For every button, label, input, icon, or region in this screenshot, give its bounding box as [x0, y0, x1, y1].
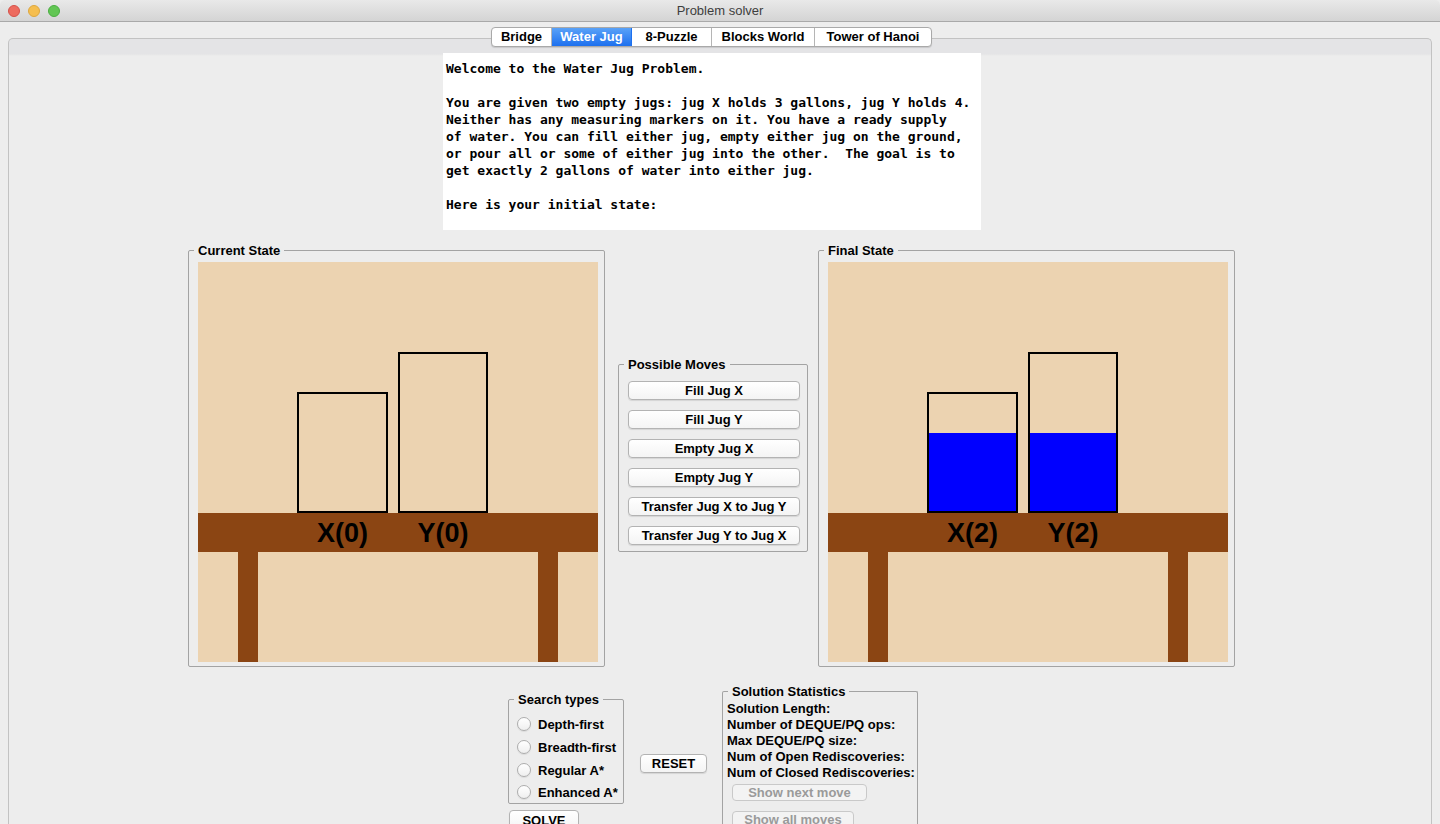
radio-breadth-first[interactable]: Breadth-first — [517, 739, 616, 755]
solution-statistics-lines: Solution Length: Number of DEQUE/PQ ops:… — [727, 701, 915, 781]
jug-y: Y(0) — [398, 352, 488, 513]
fill-jug-y-button[interactable]: Fill Jug Y — [628, 410, 800, 429]
current-state-scene: X(0) Y(0) — [198, 262, 598, 662]
transfer-jug-x-to-jug-y-button[interactable]: Transfer Jug X to Jug Y — [628, 497, 800, 516]
tab-tower-of-hanoi[interactable]: Tower of Hanoi — [815, 28, 931, 46]
table-leg-left — [238, 552, 258, 662]
transfer-jug-y-to-jug-x-button[interactable]: Transfer Jug Y to Jug X — [628, 526, 800, 545]
window-title: Problem solver — [0, 0, 1440, 22]
jug-x: X(2) — [927, 392, 1018, 513]
stat-max-deque-pq-size: Max DEQUE/PQ size: — [727, 733, 915, 749]
search-types-panel: Search types Depth-first Breadth-first R… — [508, 699, 624, 804]
tab-8-puzzle[interactable]: 8-Puzzle — [632, 28, 712, 46]
empty-jug-x-button[interactable]: Empty Jug X — [628, 439, 800, 458]
radio-button-icon[interactable] — [517, 785, 531, 799]
possible-moves-panel: Possible Moves Fill Jug X Fill Jug Y Emp… — [618, 364, 808, 552]
final-state-title: Final State — [824, 243, 898, 258]
stat-closed-rediscoveries: Num of Closed Rediscoveries: — [727, 765, 915, 781]
empty-jug-y-button[interactable]: Empty Jug Y — [628, 468, 800, 487]
radio-button-icon[interactable] — [517, 763, 531, 777]
search-types-title: Search types — [514, 692, 603, 707]
jug-x-label: X(2) — [947, 518, 998, 549]
problem-tab-bar: Bridge Water Jug 8-Puzzle Blocks World T… — [491, 27, 932, 47]
show-next-move-button[interactable]: Show next move — [732, 784, 867, 801]
radio-depth-first-label: Depth-first — [538, 717, 604, 732]
table-leg-right — [1168, 552, 1188, 662]
radio-enhanced-a-star[interactable]: Enhanced A* — [517, 784, 618, 800]
window-titlebar: Problem solver — [0, 0, 1440, 22]
show-all-moves-button[interactable]: Show all moves — [732, 811, 854, 824]
fill-jug-x-button[interactable]: Fill Jug X — [628, 381, 800, 400]
solution-statistics-title: Solution Statistics — [728, 684, 849, 699]
welcome-textbox: Welcome to the Water Jug Problem. You ar… — [443, 53, 981, 230]
stat-open-rediscoveries: Num of Open Rediscoveries: — [727, 749, 915, 765]
table-top — [828, 513, 1228, 552]
table-top — [198, 513, 598, 552]
welcome-text: Welcome to the Water Jug Problem. You ar… — [443, 53, 981, 213]
radio-regular-a-star[interactable]: Regular A* — [517, 762, 604, 778]
reset-button[interactable]: RESET — [640, 754, 707, 773]
jug-x: X(0) — [297, 392, 388, 513]
table-leg-left — [868, 552, 888, 662]
water-fill — [1030, 433, 1116, 512]
radio-depth-first[interactable]: Depth-first — [517, 716, 604, 732]
water-fill — [929, 433, 1016, 511]
current-state-title: Current State — [194, 243, 284, 258]
jug-y-label: Y(0) — [417, 518, 468, 549]
solve-button[interactable]: SOLVE — [509, 810, 579, 824]
radio-breadth-first-label: Breadth-first — [538, 740, 616, 755]
radio-button-icon[interactable] — [517, 717, 531, 731]
table-leg-right — [538, 552, 558, 662]
jug-y-label: Y(2) — [1047, 518, 1098, 549]
current-state-panel: Current State X(0) Y(0) — [188, 250, 605, 667]
final-state-scene: X(2) Y(2) — [828, 262, 1228, 662]
solution-statistics-panel: Solution Statistics Solution Length: Num… — [722, 691, 918, 824]
final-state-panel: Final State X(2) Y(2) — [818, 250, 1235, 667]
tab-water-jug[interactable]: Water Jug — [552, 28, 632, 46]
tab-bridge[interactable]: Bridge — [492, 28, 552, 46]
radio-regular-a-star-label: Regular A* — [538, 763, 604, 778]
possible-moves-title: Possible Moves — [624, 357, 730, 372]
jug-x-label: X(0) — [317, 518, 368, 549]
tab-blocks-world[interactable]: Blocks World — [712, 28, 815, 46]
jug-y: Y(2) — [1028, 352, 1118, 513]
stat-solution-length: Solution Length: — [727, 701, 915, 717]
radio-enhanced-a-star-label: Enhanced A* — [538, 785, 618, 800]
stat-deque-pq-ops: Number of DEQUE/PQ ops: — [727, 717, 915, 733]
radio-button-icon[interactable] — [517, 740, 531, 754]
